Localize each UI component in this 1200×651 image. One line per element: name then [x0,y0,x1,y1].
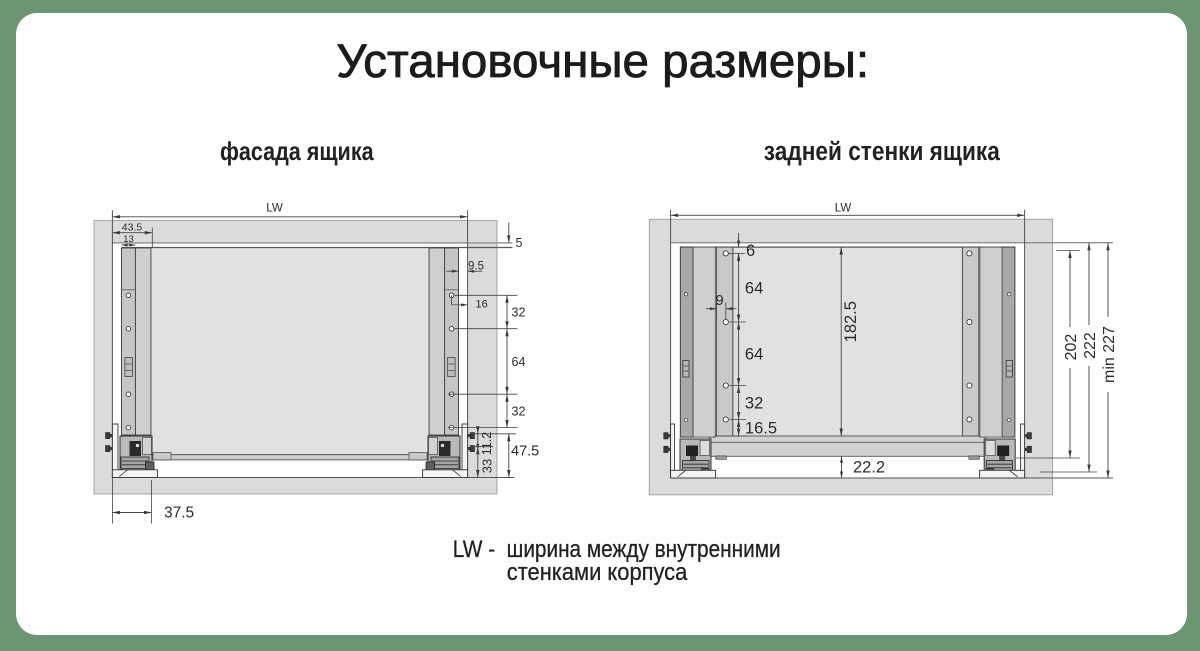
svg-text:32: 32 [512,404,526,418]
svg-text:43.5: 43.5 [122,222,143,234]
svg-text:32: 32 [512,306,526,320]
svg-text:16: 16 [476,299,488,311]
svg-text:5: 5 [516,236,523,250]
svg-text:33: 33 [480,459,495,473]
svg-text:16.5: 16.5 [745,420,777,438]
svg-text:37.5: 37.5 [164,504,194,521]
svg-text:64: 64 [512,355,526,369]
svg-text:182.5: 182.5 [842,301,860,342]
svg-text:LW: LW [266,203,283,215]
svg-text:9: 9 [715,292,723,309]
svg-text:13: 13 [123,234,134,245]
svg-text:Установочные размеры:: Установочные размеры: [336,35,869,88]
svg-text:фасада ящика: фасада ящика [220,137,374,166]
svg-text:32: 32 [745,394,763,412]
svg-text:202: 202 [1063,334,1080,361]
svg-text:64: 64 [745,346,763,364]
svg-text:22.2: 22.2 [853,459,885,477]
svg-text:min 227: min 227 [1101,326,1118,383]
svg-text:6: 6 [746,242,755,260]
svg-text:47.5: 47.5 [511,444,539,460]
svg-text:задней стенки ящика: задней стенки ящика [764,138,1000,167]
svg-text:9.5: 9.5 [468,260,484,272]
svg-text:стенками корпуса: стенками корпуса [507,558,688,585]
svg-text:222: 222 [1082,332,1099,359]
svg-text:LW: LW [835,203,852,215]
svg-text:11.2: 11.2 [480,432,494,455]
svg-text:64: 64 [745,280,763,298]
